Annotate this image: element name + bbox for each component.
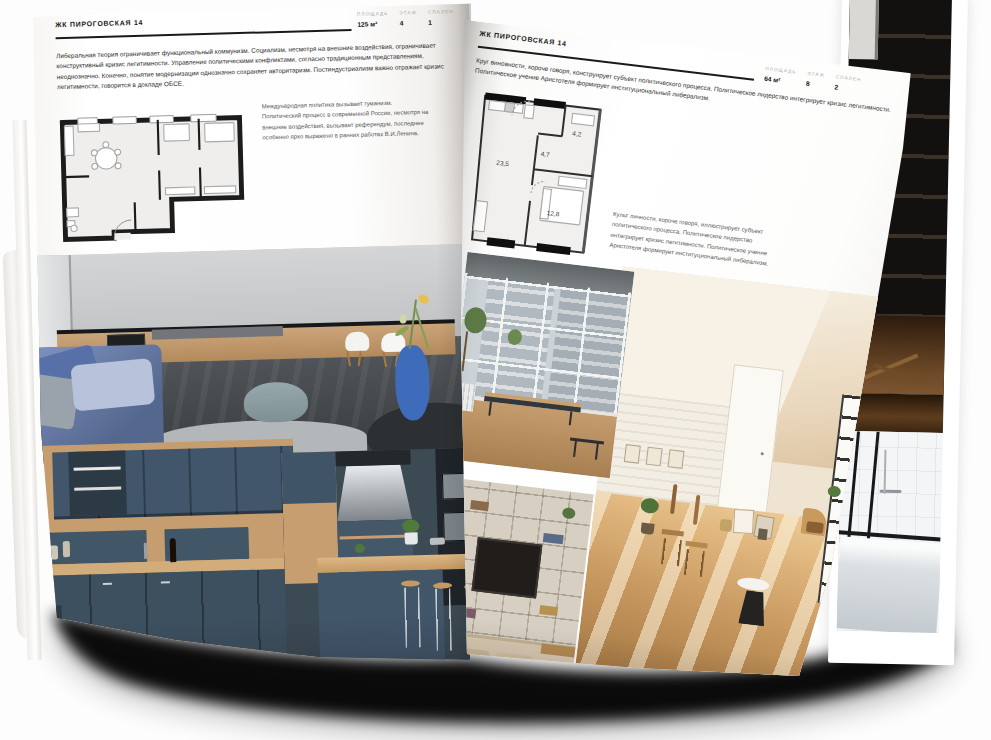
plant-pot: [640, 522, 654, 534]
area-bathroom: 4,2: [572, 130, 582, 138]
bar-base: [318, 569, 445, 664]
cabinet-handle: [103, 583, 112, 585]
glass-cabinet: [68, 450, 127, 515]
vase: [394, 345, 430, 421]
stat-value: 4: [399, 19, 417, 26]
saucepan: [429, 538, 444, 545]
herb-plant: [402, 519, 419, 532]
left-floorplan: [45, 98, 255, 254]
stat-value: 2: [834, 83, 860, 93]
stat-value: 8: [806, 79, 824, 88]
left-page-title: ЖК ПИРОГОВСКАЯ 14: [55, 19, 143, 28]
splash-panel: [47, 530, 147, 565]
chair: [345, 332, 370, 352]
wall-frame: [667, 450, 684, 470]
teal-cabinet: [281, 452, 336, 504]
right-caption: Культ личности, короче говоря, иллюстрир…: [609, 209, 785, 270]
stat-label: ЭТАЖ: [807, 71, 825, 78]
stat-area: ПЛОЩАДЬ 64 м²: [764, 66, 797, 85]
stat-floor: ЭТАЖ 8: [806, 71, 825, 88]
wine-bottle: [170, 538, 177, 562]
stat-label: ПЛОЩАДЬ: [765, 66, 797, 75]
range-hood: [336, 464, 412, 521]
faucet: [144, 543, 147, 559]
magazine-mockup: ЖК ПИРОГОВСКАЯ 14 ПЛОЩАДЬ 125 м² ЭТАЖ 4 …: [0, 0, 991, 740]
jar: [62, 541, 69, 557]
stat-area: ПЛОЩАДЬ 125 м²: [357, 11, 389, 27]
stat-label: ЭТАЖ: [399, 10, 417, 15]
area-hall: 4,7: [540, 150, 550, 158]
tub: [837, 536, 943, 633]
left-title-rule: [56, 29, 352, 39]
left-page-surface: ЖК ПИРОГОВСКАЯ 14 ПЛОЩАДЬ 125 м² ЭТАЖ 4 …: [27, 4, 487, 676]
photo-kitchen-living: [28, 243, 486, 464]
frame-art: [758, 528, 768, 540]
right-stats: ПЛОЩАДЬ 64 м² ЭТАЖ 8 СПАЛЕН 2: [764, 66, 862, 93]
cabinet-handle: [161, 581, 170, 583]
stat-label: СПАЛЕН: [836, 74, 862, 82]
stat-value: 125 м²: [357, 19, 388, 27]
splash-panel: [164, 527, 249, 561]
area-living: 23,5: [496, 159, 510, 167]
chair-cushion: [805, 521, 823, 534]
left-intro-text: Либеральная теория ограничивает функцион…: [56, 40, 447, 92]
plant-bucket: [404, 532, 417, 544]
photo-bathtub: [837, 431, 943, 633]
area-bedroom: 12,8: [546, 209, 560, 217]
hood-vent: [335, 449, 410, 466]
left-caption: Международная политика вызывает гуманизм…: [261, 97, 430, 143]
leaning-frame: [733, 509, 754, 534]
stat-label: ПЛОЩАДЬ: [357, 11, 388, 17]
wall-frame: [624, 444, 641, 464]
left-page: ЖК ПИРОГОВСКАЯ 14 ПЛОЩАДЬ 125 м² ЭТАЖ 4 …: [25, 0, 480, 700]
loft-door-frame: [849, 0, 879, 60]
basket: [719, 519, 732, 532]
wall-frame: [645, 447, 662, 467]
stat-value: 64 м²: [764, 74, 796, 85]
tv-screen: [472, 537, 543, 598]
pouf: [244, 381, 308, 422]
stool-legs: [404, 587, 421, 647]
stat-bedrooms: СПАЛЕН 2: [834, 74, 861, 92]
wood-chair-legs: [661, 538, 682, 566]
sofa-backrest: [70, 358, 155, 411]
stat-floor: ЭТАЖ 4: [399, 10, 417, 26]
wood-chair-legs: [684, 549, 705, 577]
